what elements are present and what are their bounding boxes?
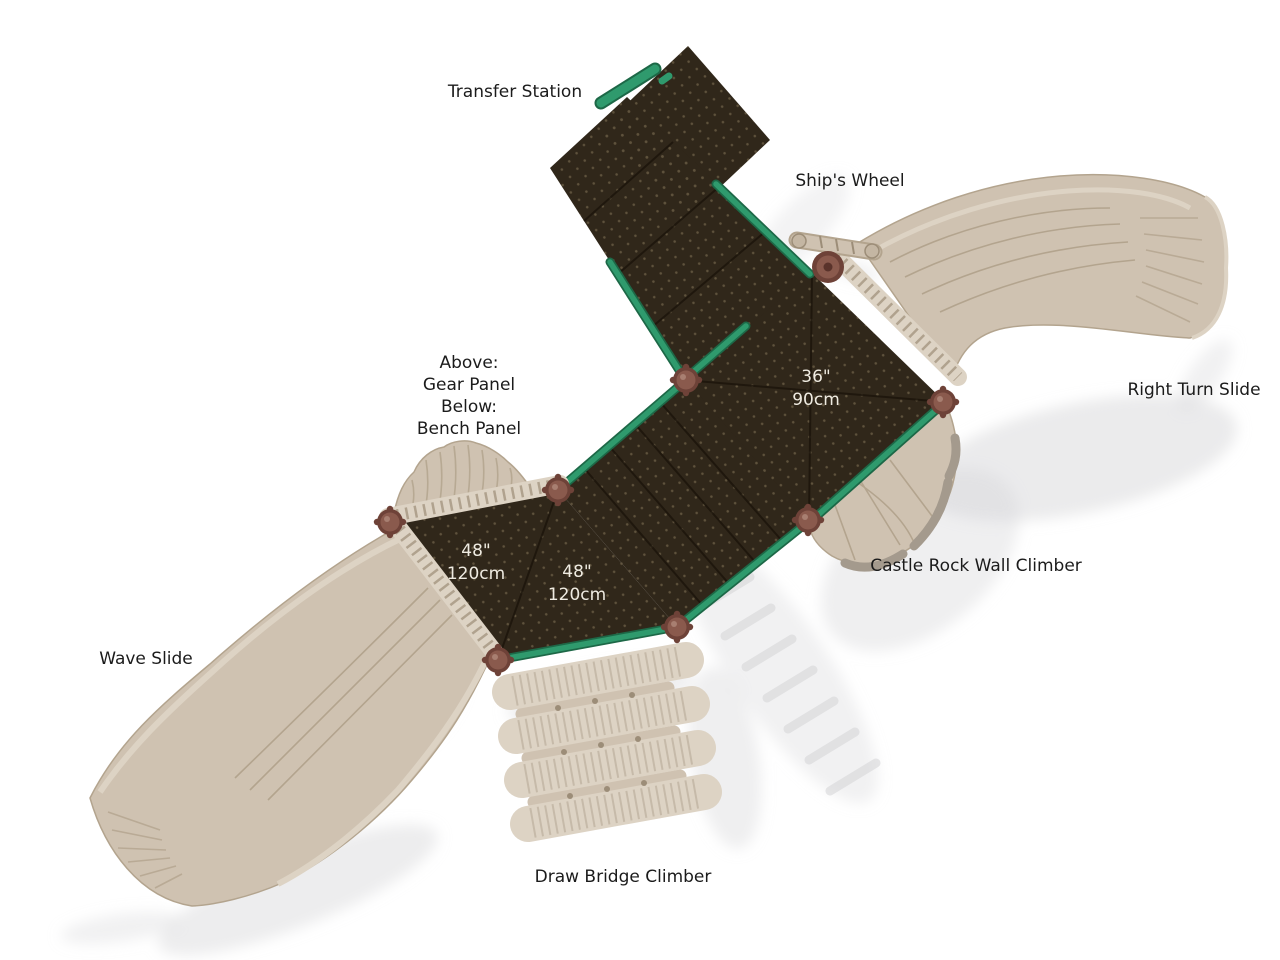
- deck-48-left-metric: 120cm: [447, 563, 505, 586]
- label-castle-rock-climber: Castle Rock Wall Climber: [870, 555, 1082, 577]
- panel-note-line-3: Below:: [417, 396, 521, 418]
- right-turn-slide-graphic: [858, 175, 1226, 378]
- panel-note-line-1: Above:: [417, 352, 521, 374]
- playground-top-view-diagram: Transfer Station Ship's Wheel Right Turn…: [0, 0, 1280, 960]
- deck-48-left-dimension: 48" 120cm: [447, 540, 505, 586]
- label-transfer-station: Transfer Station: [448, 81, 582, 103]
- structure-illustration: [0, 0, 1280, 960]
- label-ships-wheel: Ship's Wheel: [795, 170, 904, 192]
- panel-note-line-4: Bench Panel: [417, 418, 521, 440]
- deck-48-right-metric: 120cm: [548, 584, 606, 607]
- label-right-turn-slide: Right Turn Slide: [1127, 379, 1260, 401]
- label-wave-slide: Wave Slide: [99, 648, 193, 670]
- deck-48-left-imperial: 48": [447, 540, 505, 563]
- deck-36-metric: 90cm: [792, 389, 840, 412]
- deck-48-right-dimension: 48" 120cm: [548, 561, 606, 607]
- deck-48-right-imperial: 48": [548, 561, 606, 584]
- panel-note-line-2: Gear Panel: [417, 374, 521, 396]
- deck-36-dimension: 36" 90cm: [792, 366, 840, 412]
- label-draw-bridge-climber: Draw Bridge Climber: [535, 866, 712, 888]
- label-panel-note: Above: Gear Panel Below: Bench Panel: [417, 352, 521, 440]
- deck-36-imperial: 36": [792, 366, 840, 389]
